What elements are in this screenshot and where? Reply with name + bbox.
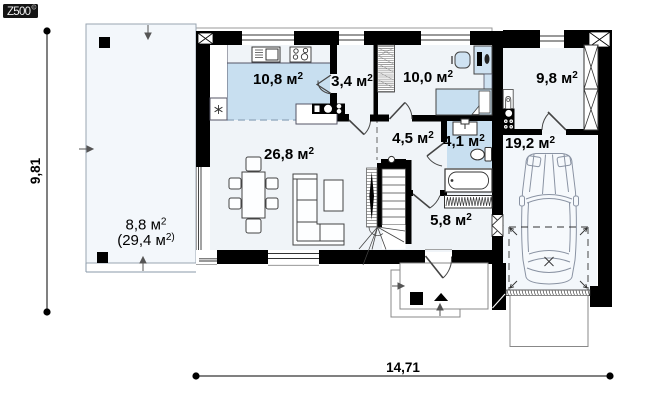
svg-text:14,71: 14,71 xyxy=(386,360,420,375)
svg-text:26,8 м2: 26,8 м2 xyxy=(264,146,314,163)
svg-text:19,2 м2: 19,2 м2 xyxy=(505,135,555,152)
svg-text:10,8 м2: 10,8 м2 xyxy=(253,71,303,88)
svg-text:9,8 м2: 9,8 м2 xyxy=(536,70,578,87)
svg-text:8,8 м2: 8,8 м2 xyxy=(126,217,167,234)
svg-text:4,1 м2: 4,1 м2 xyxy=(443,133,485,150)
svg-text:10,0 м2: 10,0 м2 xyxy=(403,69,453,86)
svg-text:©: © xyxy=(32,4,37,12)
svg-text:3,4 м2: 3,4 м2 xyxy=(331,73,373,90)
svg-text:5,8 м2: 5,8 м2 xyxy=(430,212,472,229)
svg-text:Z500: Z500 xyxy=(7,6,31,18)
svg-text:4,5 м2: 4,5 м2 xyxy=(392,130,434,147)
svg-text:9,81: 9,81 xyxy=(28,157,43,184)
